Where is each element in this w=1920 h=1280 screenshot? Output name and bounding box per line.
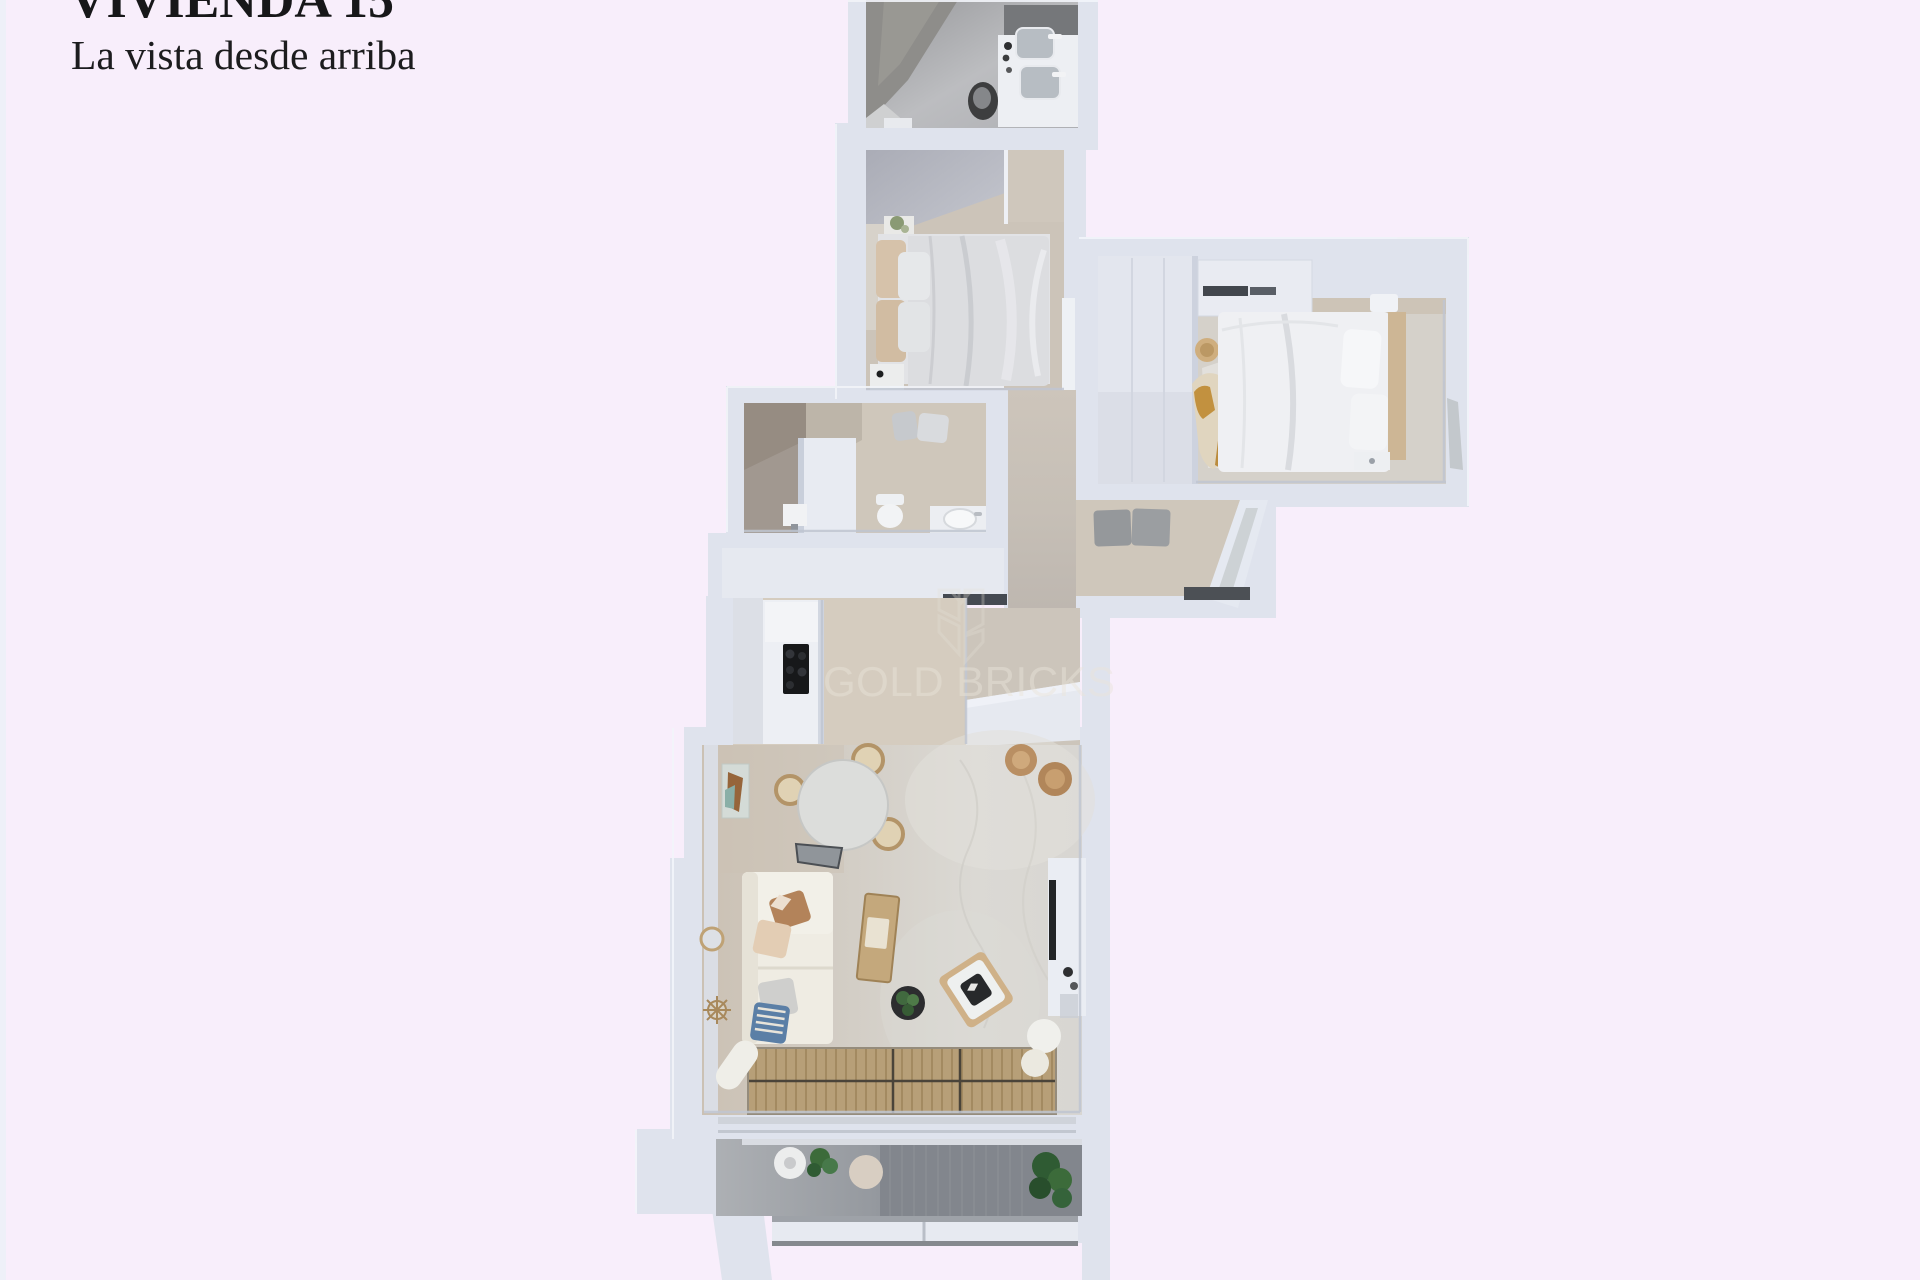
svg-text:La vista desde arriba: La vista desde arriba	[71, 32, 416, 78]
svg-text:GOLD BRICKS: GOLD BRICKS	[823, 658, 1116, 705]
svg-text:VIVIENDA 15: VIVIENDA 15	[69, 0, 394, 29]
